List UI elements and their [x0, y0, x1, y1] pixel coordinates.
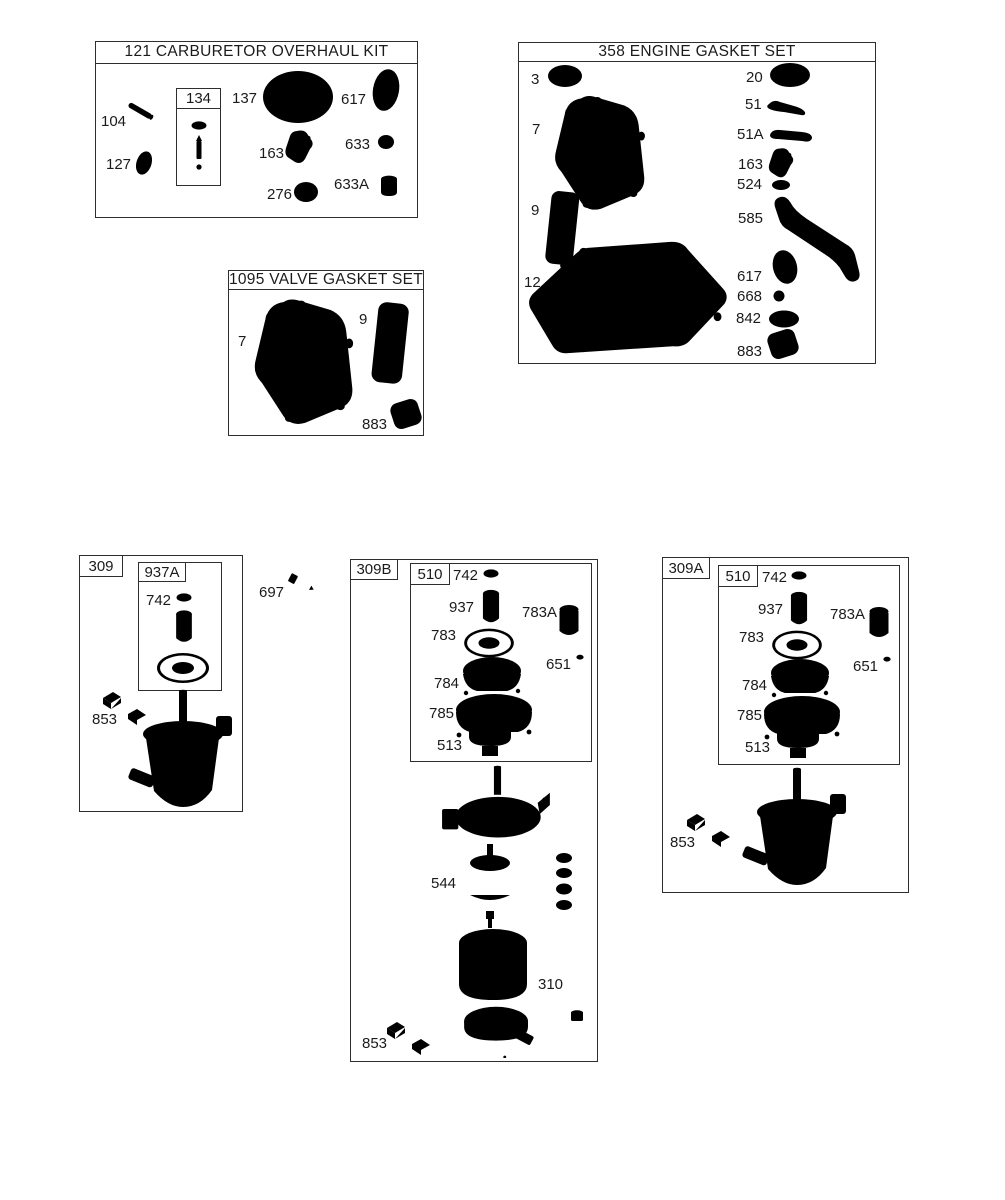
- exhaust-gasket-icon: [765, 326, 801, 362]
- needle-valve-icon: [192, 134, 206, 174]
- part-label-163b: 163: [738, 157, 763, 172]
- oil-seal-icon: [546, 63, 584, 91]
- starter-309-tag: 309: [79, 555, 123, 577]
- part-label-697: 697: [259, 585, 284, 600]
- part-label-276: 276: [267, 187, 292, 202]
- part-label-883v: 883: [362, 417, 387, 432]
- parts-diagram-page: 121 CARBURETOR OVERHAUL KIT 104 127 134 …: [0, 0, 1005, 1200]
- sump-gasket-icon: [524, 238, 734, 360]
- part-label-668: 668: [737, 289, 762, 304]
- helix-icon: [478, 588, 504, 626]
- connector-icon: [384, 1018, 436, 1056]
- part-label-651b: 651: [546, 657, 571, 672]
- washer-icon: [190, 119, 208, 132]
- part-label-127: 127: [106, 157, 131, 172]
- bushing-icon: [379, 174, 399, 198]
- part-label-9: 9: [531, 203, 539, 218]
- ring-gasket-icon: [768, 247, 802, 287]
- washer-stack-icon: [554, 851, 574, 865]
- helix-icon: [786, 590, 812, 628]
- starter-drive-icon: [772, 718, 824, 762]
- needle-kit-label: 134: [176, 88, 221, 109]
- washer-icon: [175, 591, 193, 604]
- carb-kit-title: 121 CARBURETOR OVERHAUL KIT: [95, 41, 418, 64]
- nut-icon: [554, 881, 574, 897]
- o-ring-icon: [132, 148, 156, 178]
- carb-gasket-icon: [283, 128, 315, 166]
- drive-kit-510-tag: 510: [718, 565, 758, 587]
- through-bolt-icon: [568, 942, 586, 1026]
- tiny-screw-icon: [575, 654, 585, 672]
- part-label-51A: 51A: [737, 127, 764, 142]
- washer-stack-icon: [554, 898, 574, 912]
- starter-drive-icon: [464, 716, 516, 760]
- float-bowl-gasket-icon: [260, 68, 336, 126]
- pin-icon: [124, 98, 156, 124]
- part-label-310: 310: [538, 977, 563, 992]
- sealing-washer-icon: [292, 180, 320, 204]
- starter-motor-icon: [128, 688, 238, 810]
- part-label-742: 742: [146, 593, 171, 608]
- pinion-icon: [556, 603, 582, 639]
- part-label-104: 104: [101, 114, 126, 129]
- starter-motor-icon: [742, 766, 852, 888]
- part-label-937a: 937: [758, 602, 783, 617]
- starter-309B-tag: 309B: [350, 559, 398, 580]
- part-label-633: 633: [345, 137, 370, 152]
- pinion-icon: [866, 605, 892, 641]
- grommet-icon: [376, 133, 396, 151]
- helix-icon: [172, 608, 196, 646]
- gasket-51A-icon: [766, 123, 816, 147]
- part-label-651a: 651: [853, 659, 878, 674]
- part-label-513a: 513: [745, 740, 770, 755]
- screw-icon: [286, 571, 318, 597]
- part-label-585: 585: [738, 211, 763, 226]
- drive-kit-510-tag: 510: [410, 563, 450, 585]
- part-label-7v: 7: [238, 334, 246, 349]
- o-ring-524-icon: [769, 177, 793, 193]
- washer-icon: [790, 569, 808, 582]
- part-label-9v: 9: [359, 312, 367, 327]
- drive-end-bracket-icon: [438, 764, 558, 852]
- part-label-617b: 617: [737, 269, 762, 284]
- head-gasket-icon: [250, 296, 360, 430]
- engine-gasket-title: 358 ENGINE GASKET SET: [518, 42, 876, 62]
- part-label-842: 842: [736, 311, 761, 326]
- part-label-524: 524: [737, 177, 762, 192]
- part-label-3: 3: [531, 72, 539, 87]
- motor-housing-icon: [453, 926, 533, 1004]
- part-label-513b: 513: [437, 738, 462, 753]
- part-label-633A: 633A: [334, 177, 369, 192]
- part-label-7: 7: [532, 122, 540, 137]
- part-label-742b: 742: [453, 568, 478, 583]
- starter-gear-icon: [151, 646, 215, 690]
- starter-309A-tag: 309A: [662, 557, 710, 579]
- tiny-screw-icon: [882, 656, 892, 674]
- washer-icon: [482, 567, 500, 580]
- part-label-20: 20: [746, 70, 763, 85]
- intake-gasket-icon: [766, 146, 796, 180]
- washer-stack-icon: [554, 866, 574, 880]
- o-ring-thin-icon: [368, 66, 404, 114]
- part-label-783b: 783: [431, 628, 456, 643]
- gasket-51-icon: [764, 96, 810, 120]
- part-label-783Aa: 783A: [830, 607, 865, 622]
- connector-icon: [684, 810, 736, 848]
- tiny-seal-icon: [772, 289, 786, 303]
- part-label-51: 51: [745, 97, 762, 112]
- armature-icon: [461, 843, 519, 931]
- part-label-617: 617: [341, 92, 366, 107]
- brush-end-cap-icon: [458, 998, 538, 1058]
- part-label-742a: 742: [762, 570, 787, 585]
- gear-kit-937A-tag: 937A: [138, 562, 186, 582]
- breather-gasket-icon: [369, 298, 413, 390]
- part-label-137: 137: [232, 91, 257, 106]
- part-label-783Ab: 783A: [522, 605, 557, 620]
- exhaust-gasket-icon: [388, 396, 424, 432]
- valve-gasket-title: 1095 VALVE GASKET SET: [228, 270, 424, 290]
- part-label-783a: 783: [739, 630, 764, 645]
- part-label-544: 544: [431, 876, 456, 891]
- part-label-883: 883: [737, 344, 762, 359]
- part-label-937b: 937: [449, 600, 474, 615]
- part-label-163: 163: [259, 146, 284, 161]
- flange-seal-icon: [768, 61, 812, 91]
